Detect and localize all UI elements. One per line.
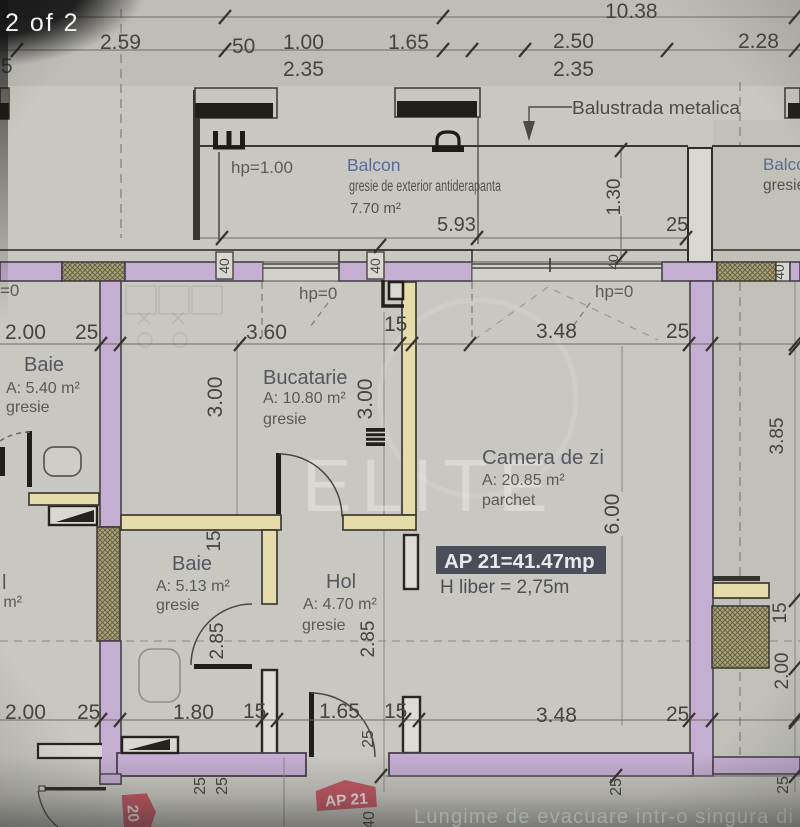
svg-text:2 of 2: 2 of 2 [5, 9, 80, 37]
